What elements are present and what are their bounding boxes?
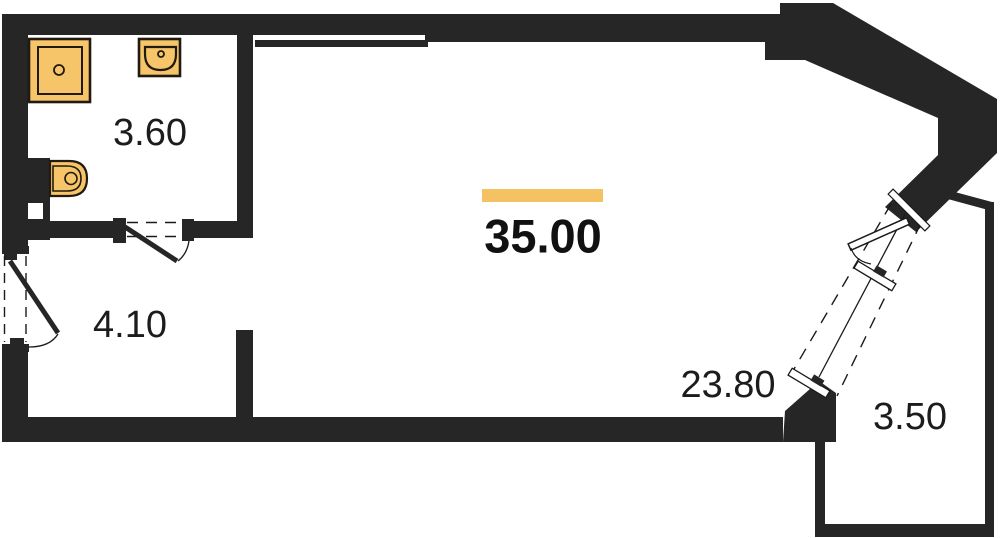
wall-niche-lip (255, 40, 428, 47)
entrance-door (5, 256, 59, 347)
bathroom-door-jamb-left (113, 218, 126, 243)
entrance-jamb-top (2, 246, 29, 254)
wall-bathroom-right (237, 35, 253, 238)
wall-partition-stub (236, 330, 253, 418)
balcony-door-swing-arc (851, 248, 871, 264)
floor-plan-drawing (0, 0, 1000, 538)
balcony-door-leaf (848, 218, 909, 250)
wall-left-upper (2, 14, 28, 252)
balcony-outline (815, 184, 994, 537)
entrance-jamb-bottom (2, 344, 29, 352)
entrance-jamb-top-tick (4, 253, 17, 260)
glazing-dash-left (794, 204, 891, 369)
bathroom-area-label: 3.60 (113, 114, 187, 152)
bathroom-door-swing-arc (178, 241, 189, 261)
window-sill-middle (854, 261, 896, 291)
wall-top-right-section (425, 14, 790, 42)
entrance-door-leaf (10, 261, 58, 333)
floor-plan: 3.60 4.10 23.80 3.50 35.00 (0, 0, 1000, 538)
bathroom-door-jamb-right (182, 219, 194, 241)
hallway-area-label: 4.10 (93, 306, 167, 344)
shower-tray-icon (29, 39, 90, 102)
total-area-highlight-bar (482, 189, 603, 202)
sink-icon (139, 39, 180, 76)
toilet-icon (28, 158, 87, 196)
wall-notch (28, 203, 43, 219)
wall-bottom (2, 417, 783, 442)
toilet-cistern (28, 158, 50, 196)
balcony-area-label: 3.50 (873, 398, 947, 436)
total-area-label: 35.00 (484, 213, 602, 260)
balcony-wall-right (985, 202, 994, 537)
living-room-area-label: 23.80 (680, 366, 775, 404)
bathroom-door (122, 223, 189, 262)
bathroom-door-leaf (122, 225, 177, 261)
balcony-wall-bottom (815, 524, 994, 537)
wall-top-left-section (2, 14, 425, 35)
balcony-wall-left (815, 438, 825, 537)
entrance-door-swing-arc (29, 334, 58, 347)
